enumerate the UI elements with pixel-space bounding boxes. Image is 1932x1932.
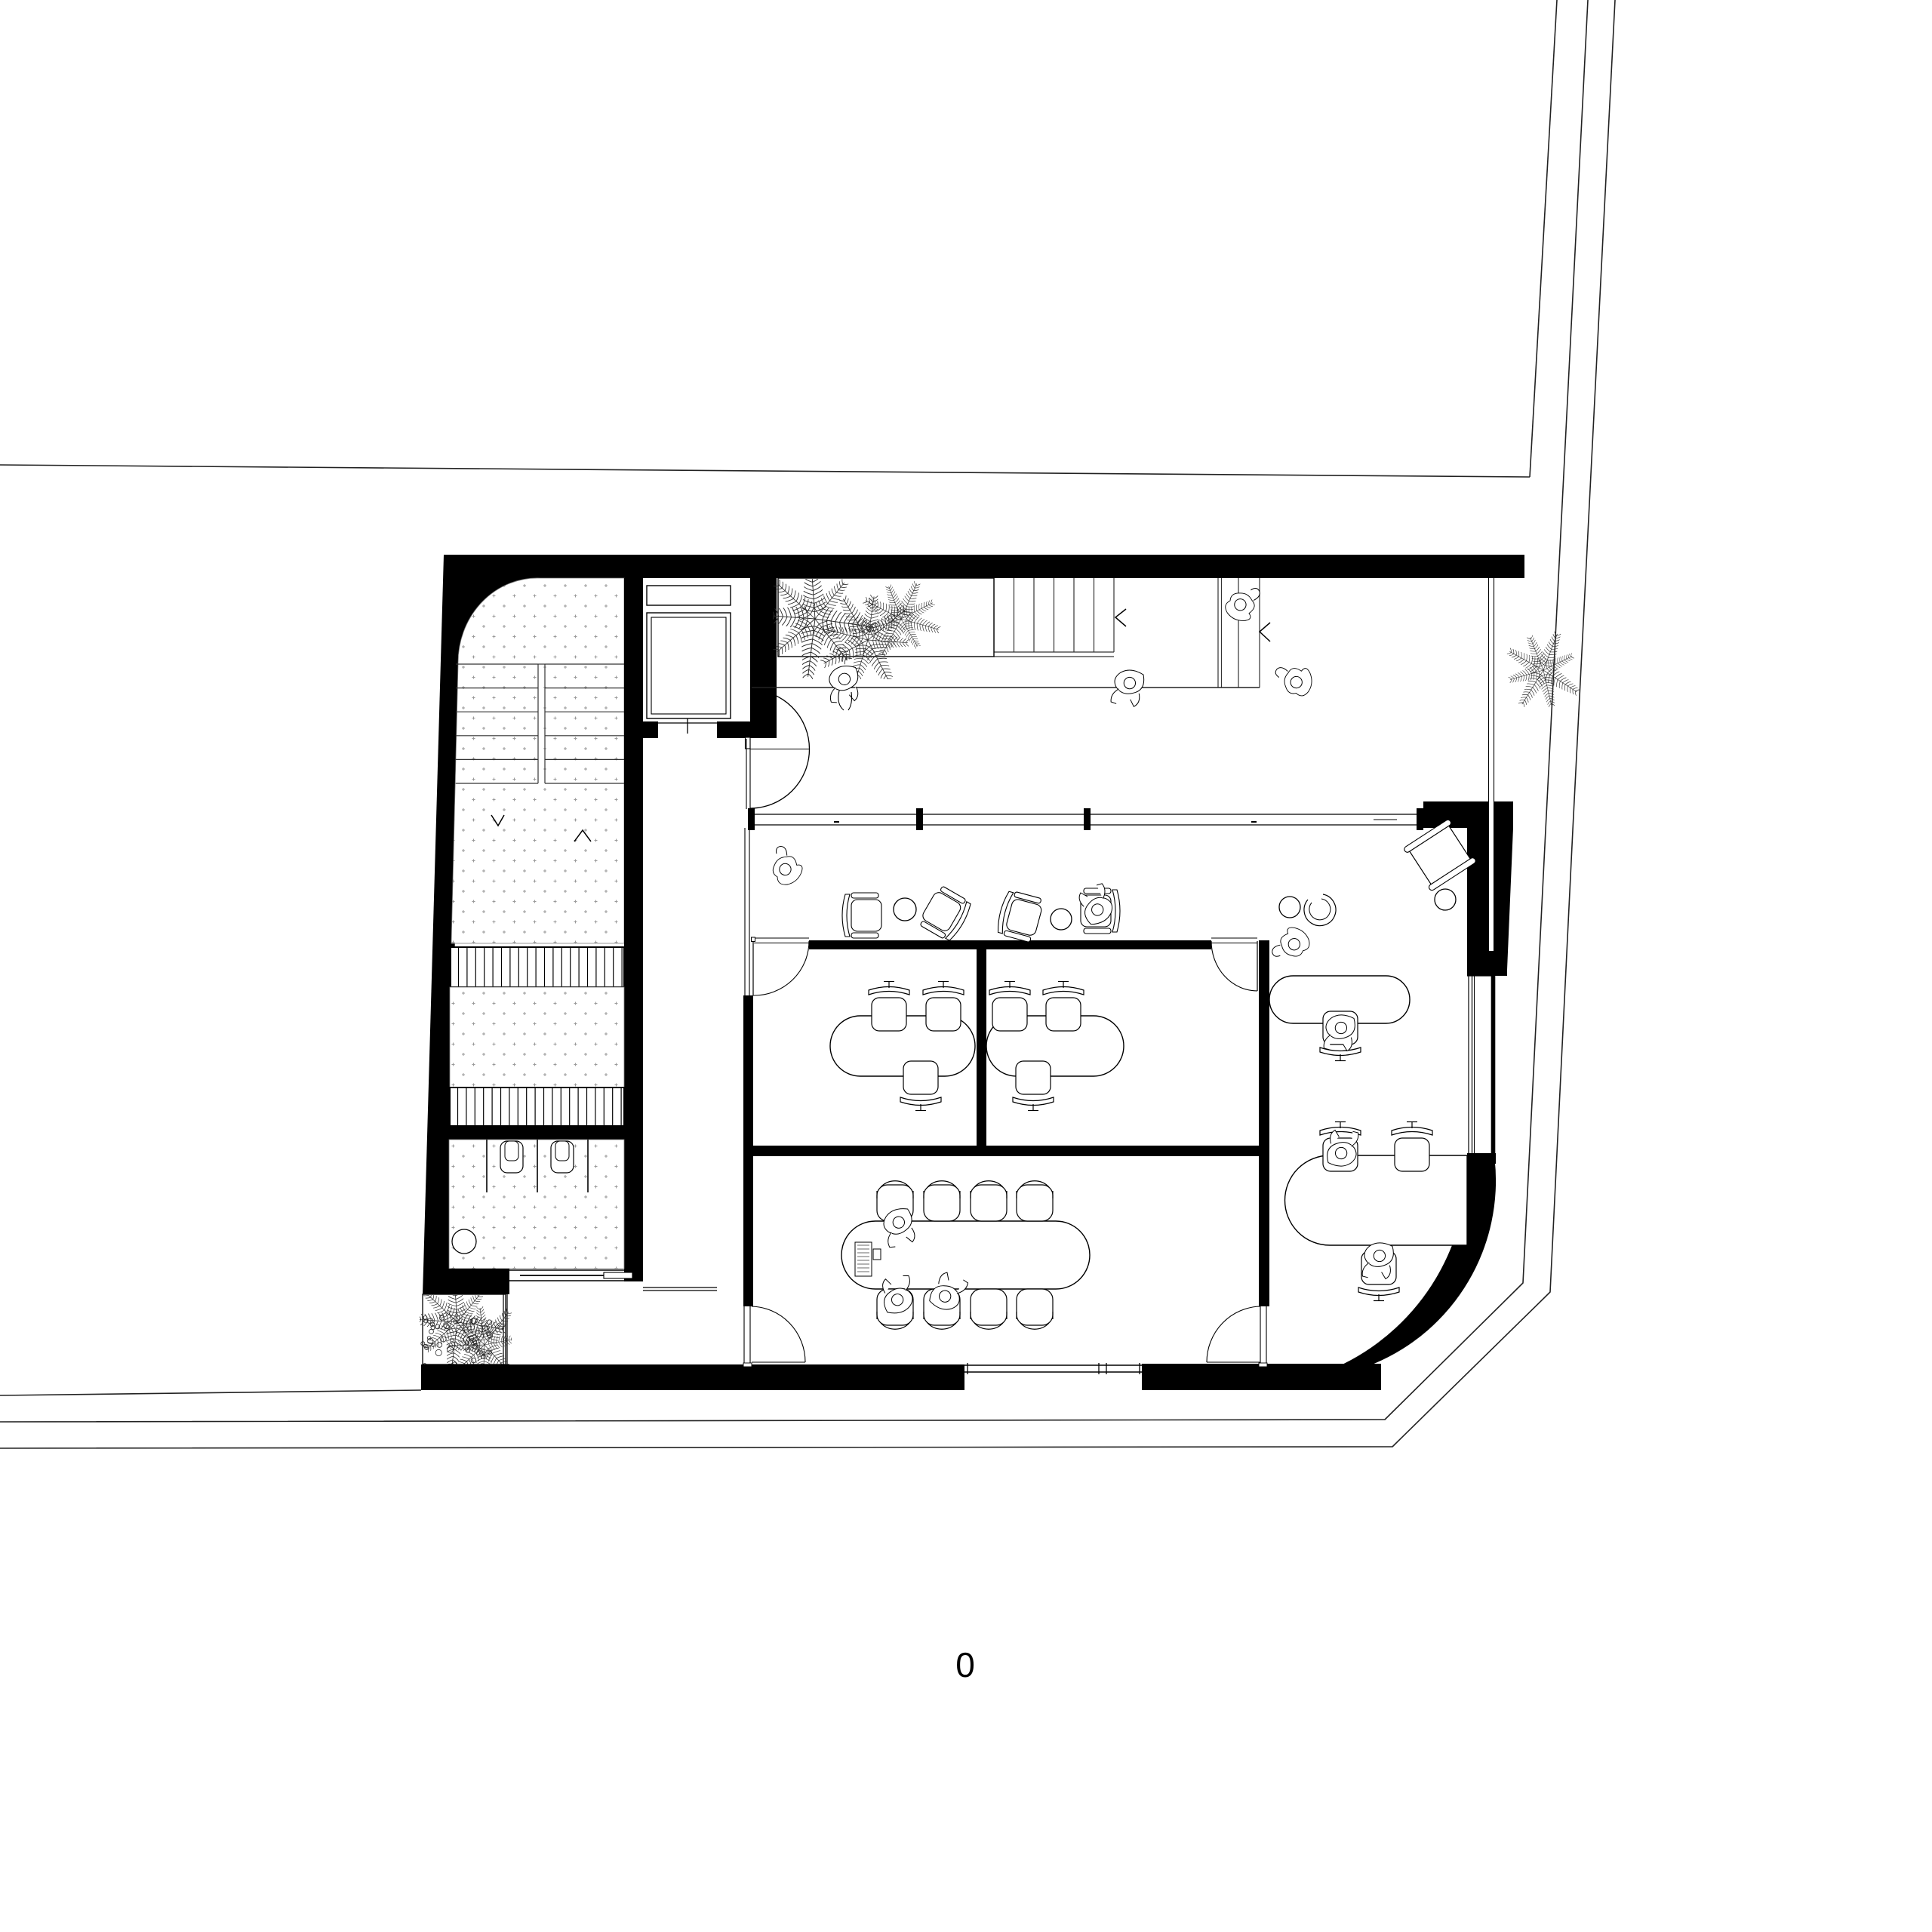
svg-text:0: 0 bbox=[955, 1645, 975, 1684]
